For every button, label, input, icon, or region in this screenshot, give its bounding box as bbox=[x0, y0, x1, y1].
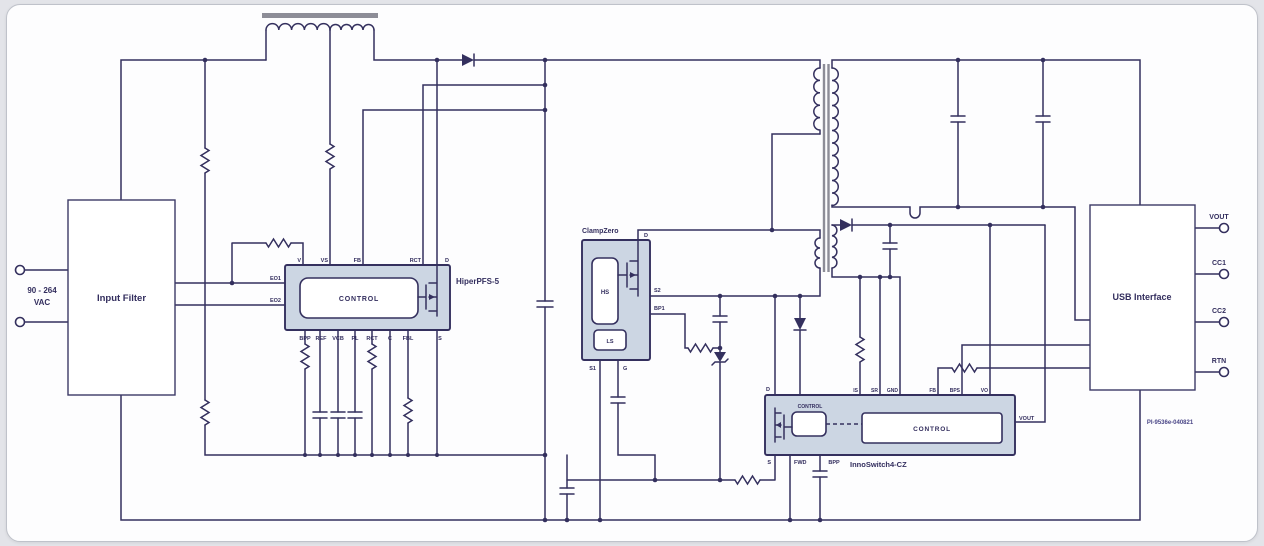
innoswitch-pin-bpp-label: BPP bbox=[828, 460, 840, 466]
pfs-name-label: HiperPFS-5 bbox=[456, 277, 500, 286]
pfs-pin-c-label: C bbox=[388, 336, 392, 342]
clampzero-pin-s1-label: S1 bbox=[589, 366, 596, 372]
rtn-label: RTN bbox=[1212, 358, 1226, 365]
cc2-label: CC2 bbox=[1212, 308, 1226, 315]
innoswitch-pin-bps-label: BPS bbox=[950, 388, 961, 394]
vout-label: VOUT bbox=[1209, 214, 1229, 221]
clampzero-pin-bp1-label: BP1 bbox=[654, 306, 665, 312]
innoswitch-pin-fb-label: FB bbox=[929, 388, 936, 394]
pfc-inductor bbox=[262, 13, 378, 30]
pfs-pin-rct2-label: RCT bbox=[366, 336, 378, 342]
innoswitch-pin-fwd-label: FWD bbox=[794, 460, 807, 466]
pfs-pin-pl-label: PL bbox=[351, 336, 359, 342]
pfs-pin-v-label: V bbox=[297, 258, 301, 264]
clampzero-pin-d-label: D bbox=[644, 233, 648, 239]
clampzero-hs-label: HS bbox=[601, 290, 609, 296]
boost-diode bbox=[462, 54, 474, 66]
clampzero-block: ClampZero HS LS D S2 BP1 S1 G bbox=[582, 228, 665, 372]
usb-interface-block: USB Interface bbox=[1090, 205, 1195, 390]
innoswitch-pin-d-label: D bbox=[766, 387, 770, 393]
ac-unit-label: VAC bbox=[34, 298, 51, 307]
pfs-pin-vs-label: VS bbox=[321, 258, 329, 264]
power-supply-schematic: Input Filter CONTROL HiperPFS-5 V VS FB … bbox=[0, 0, 1264, 546]
innoswitch-pin-sr-label: SR bbox=[871, 388, 878, 394]
clampzero-pin-s2-label: S2 bbox=[654, 288, 661, 294]
ac-input-terminal-bottom bbox=[16, 318, 25, 327]
input-filter-block: Input Filter bbox=[68, 200, 175, 395]
ac-input-terminal-top bbox=[16, 266, 25, 275]
innoswitch-control-label: CONTROL bbox=[913, 426, 951, 433]
innoswitch-pin-gnd-label: GND bbox=[887, 388, 899, 394]
pfs-control-label: CONTROL bbox=[339, 296, 379, 303]
pfs-pin-eo1-label: EO1 bbox=[270, 276, 281, 282]
clampzero-ls-label: LS bbox=[606, 339, 613, 345]
transformer bbox=[814, 64, 838, 272]
innoswitch-primary-control-label: CONTROL bbox=[798, 404, 823, 410]
cc1-label: CC1 bbox=[1212, 260, 1226, 267]
rtn-terminal bbox=[1220, 368, 1229, 377]
input-terminals: 90 - 264 VAC bbox=[16, 266, 58, 327]
pfs-pin-vcb-label: VCB bbox=[332, 336, 344, 342]
pfs-pin-bpp-label: BPP bbox=[299, 336, 311, 342]
pfs-pin-fbl-label: FBL bbox=[403, 336, 414, 342]
innoswitch-pin-vout-label: VOUT bbox=[1019, 416, 1035, 422]
ac-range-label: 90 - 264 bbox=[27, 286, 57, 295]
figure-part-number: PI-9536e-040821 bbox=[1147, 420, 1194, 426]
output-terminals: VOUT CC1 CC2 RTN bbox=[1209, 214, 1229, 377]
cc1-terminal bbox=[1220, 270, 1229, 279]
usb-interface-label: USB Interface bbox=[1112, 292, 1171, 302]
clampzero-name-label: ClampZero bbox=[582, 228, 619, 235]
vout-terminal bbox=[1220, 224, 1229, 233]
innoswitch-pin-s-label: S bbox=[767, 460, 771, 466]
clampzero-pin-g-label: G bbox=[623, 366, 627, 372]
pfs-pin-fb-label: FB bbox=[354, 258, 361, 264]
input-filter-label: Input Filter bbox=[97, 293, 146, 304]
innoswitch-pin-is-label: IS bbox=[853, 388, 858, 394]
pfs-pin-ref-label: REF bbox=[316, 336, 328, 342]
secondary-diode bbox=[840, 219, 852, 231]
pfs-pin-rct-label: RCT bbox=[410, 258, 422, 264]
innoswitch-name-label: InnoSwitch4-CZ bbox=[850, 460, 907, 469]
hiperpfs5-block: CONTROL HiperPFS-5 V VS FB RCT D EO1 EO2… bbox=[270, 258, 500, 342]
innoswitch-block: CONTROL CONTROL InnoSwitch4-CZ D IS SR G… bbox=[765, 387, 1035, 469]
innoswitch-pin-vo-label: VO bbox=[981, 388, 988, 394]
cc2-terminal bbox=[1220, 318, 1229, 327]
pfs-pin-s-label: S bbox=[438, 336, 442, 342]
pfs-pin-d-label: D bbox=[445, 258, 449, 264]
forward-diode bbox=[794, 318, 806, 330]
pfs-pin-eo2-label: EO2 bbox=[270, 298, 281, 304]
